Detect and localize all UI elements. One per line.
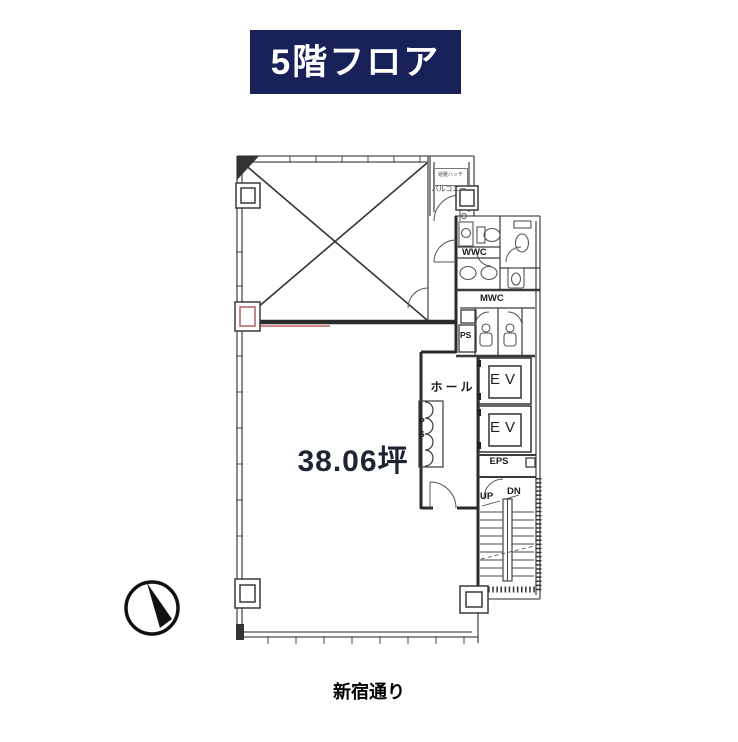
elevator-hall-label: ホール [429,381,477,394]
mens-wc-label: MWC [480,294,512,304]
womens-wc-label: WWC [462,248,492,258]
core-walls [421,216,478,599]
street-name-label: 新宿通り [0,683,738,702]
north-compass-icon [122,577,184,639]
corner-fill-top-left [237,156,259,180]
stairs-up-label: UP [480,492,502,502]
floorplan-drawing [0,0,738,742]
cross-room-diagonals [243,163,427,320]
elevator-2-label: EV [483,420,527,436]
stairs-down-label: DN [507,487,529,497]
floor-area-label: 38.06坪 [262,446,444,478]
pipe-space-label: PS [460,331,478,340]
pillars [235,183,488,613]
pipe-space-shaft-label: PS [419,415,428,441]
elevator-1-label: EV [483,372,527,388]
balcony-label: バルコニー [426,186,472,193]
balcony-hatch-label: 避難ハッチ [433,168,468,186]
eps-label: EPS [482,457,516,467]
corner-fill-bottom-left [236,624,244,640]
restroom-fixtures [459,221,531,346]
